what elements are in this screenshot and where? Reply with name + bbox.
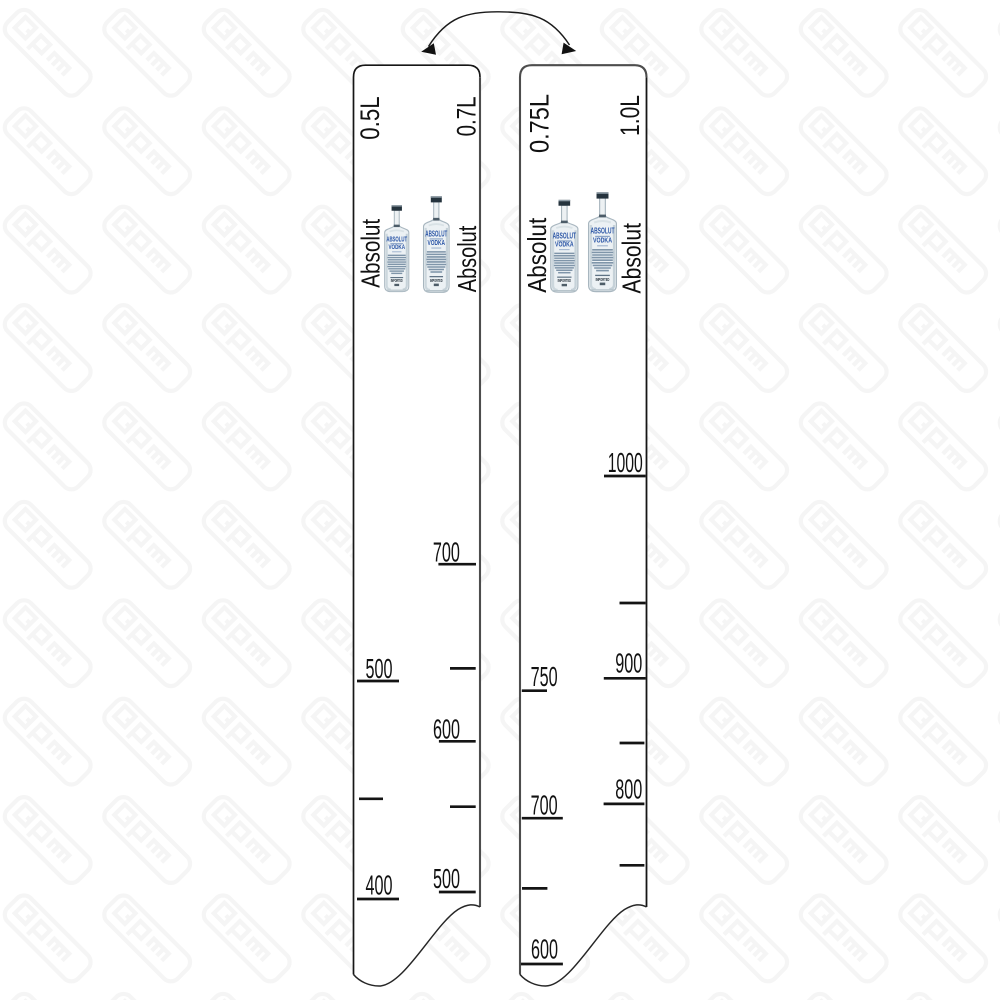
svg-text:Absolut: Absolut [452,225,482,292]
svg-text:Absolut: Absolut [616,222,646,293]
svg-text:0.7L: 0.7L [452,96,482,136]
svg-text:500: 500 [433,863,460,894]
svg-text:Absolut: Absolut [355,218,385,288]
svg-text:900: 900 [615,648,642,679]
svg-text:Absolut: Absolut [522,217,552,293]
svg-text:0.75L: 0.75L [525,94,555,153]
svg-text:1.0L: 1.0L [615,95,645,136]
svg-text:600: 600 [433,714,460,745]
svg-text:800: 800 [615,773,642,804]
svg-text:750: 750 [531,661,558,692]
svg-text:700: 700 [531,790,558,821]
svg-text:0.5L: 0.5L [355,96,385,140]
svg-text:600: 600 [531,934,558,965]
svg-text:500: 500 [366,653,393,684]
svg-text:400: 400 [366,870,393,901]
svg-text:1000: 1000 [608,447,643,478]
